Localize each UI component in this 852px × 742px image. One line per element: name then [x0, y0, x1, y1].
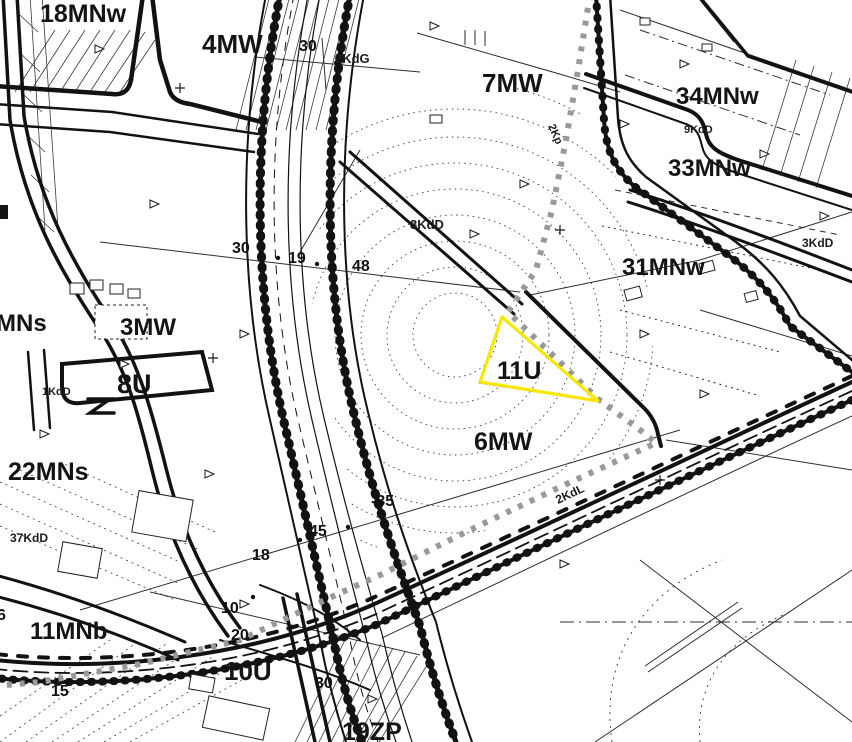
map-canvas: 18MNw4MW7MW34MNw33MNw31MNwMNs3MW8U11U6MW… [0, 0, 852, 742]
edge-building [0, 205, 8, 219]
parcel-lines [80, 0, 852, 742]
survey-number-30: 30 [299, 38, 317, 55]
survey-number--35: -35 [371, 493, 394, 510]
contour-lines [171, 51, 739, 619]
survey-number-18: 18 [252, 547, 270, 564]
street-top-right [596, 0, 852, 372]
zone-label-11MNb: 11MNb [30, 618, 107, 645]
road-label-2KdG: 2KdG [335, 51, 370, 66]
road-label-3KdD: 3KdD [802, 236, 834, 250]
pedestrian-path [0, 0, 656, 686]
zone-label-22MNs: 22MNs [8, 458, 89, 486]
road-2kdl [0, 376, 852, 682]
road-label-8KdD: 8KdD [410, 217, 444, 232]
survey-number-6: 6 [0, 607, 6, 624]
zone-label-3MW: 3MW [120, 314, 176, 341]
road-label-1KdD: 1KdD [42, 386, 71, 398]
survey-numbers: 30301948-354518102061530 [0, 38, 394, 700]
zone-label-10U: 10U [224, 656, 272, 686]
zone-label-7MW: 7MW [482, 68, 543, 98]
zone-label-18MNw: 18MNw [40, 0, 127, 28]
survey-number-15: 15 [51, 683, 69, 700]
zone-label-4MW: 4MW [202, 29, 263, 59]
survey-number-30: 30 [315, 675, 333, 692]
road-label-9KdD: 9KdD [684, 124, 713, 136]
survey-number-48: 48 [352, 258, 370, 275]
zone-label-MNs: MNs [0, 310, 47, 337]
contour-lines-bottom-right [610, 560, 790, 742]
road-label-2Kp: 2Kp [545, 122, 565, 146]
street-8kdd [340, 152, 522, 314]
zone-label-11U: 11U [497, 357, 541, 385]
zone-label-31MNw: 31MNw [622, 254, 705, 281]
survey-number-45: 45 [309, 523, 327, 540]
zone-label-8U: 8U [117, 369, 152, 399]
zone-label-34MNw: 34MNw [676, 83, 759, 110]
zone-label-19ZP: 19ZP [342, 718, 402, 742]
street-south-east-of-10u [283, 594, 330, 742]
zoning-map-screenshot: 18MNw4MW7MW34MNw33MNw31MNwMNs3MW8U11U6MW… [0, 0, 852, 742]
road-label-37KdD: 37KdD [10, 531, 48, 545]
survey-number-10: 10 [221, 600, 239, 617]
survey-number-19: 19 [288, 250, 306, 267]
construction-dashes [0, 376, 852, 658]
zone-label-6MW: 6MW [474, 428, 533, 456]
embankment-ticks [596, 0, 852, 372]
survey-number-30: 30 [232, 240, 250, 257]
zone-label-33MNw: 33MNw [668, 155, 751, 182]
survey-number-20: 20 [231, 627, 249, 644]
